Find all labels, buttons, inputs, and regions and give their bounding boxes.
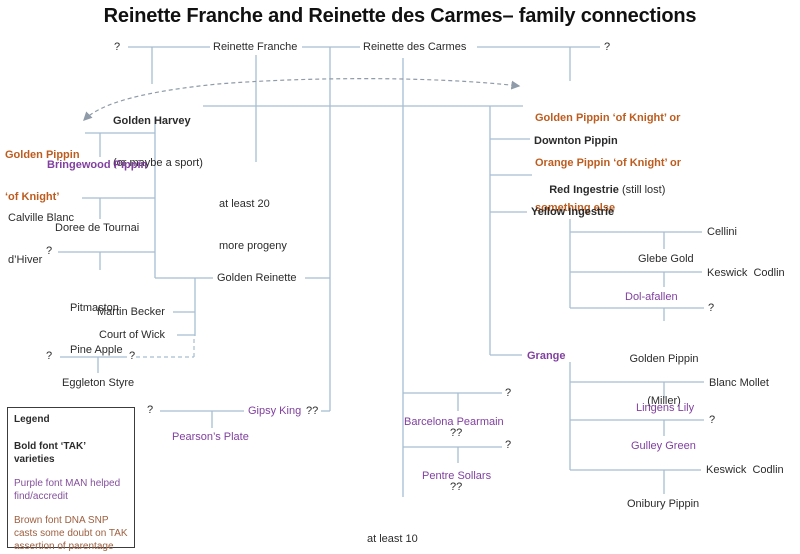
node-keswick-codlin-lower: Keswick Codlin [706,463,784,477]
node-glebe-gold: Glebe Gold [638,252,694,266]
node-blanc-mollet: Blanc Mollet [709,376,769,390]
barcelona-doubt-marks: ?? [450,426,462,440]
red-ingestrie-note: (still lost) [619,184,665,196]
unknown-parent-eggleton-1: ? [46,349,52,363]
node-reinette-franche: Reinette Franche [213,40,297,54]
unknown-parent-top-left: ? [114,40,120,54]
node-yellow-ingestrie: Yellow Ingestrie [531,205,614,219]
node-golden-harvey: Golden Harvey (or maybe a sport) [113,86,203,198]
node-doree-de-tournai: Doree de Tournai [55,221,139,235]
unknown-parent-gipsy: ? [147,403,153,417]
unknown-parent-gulley: ? [709,413,715,427]
node-bringewood-pippin: Bringewood Pippin [47,158,147,172]
node-downton-pippin: Downton Pippin [534,134,618,148]
node-gulley-green: Gulley Green [631,439,696,453]
slide-canvas: Reinette Franche and Reinette des Carmes… [0,0,800,554]
unknown-parent-top-right: ? [604,40,610,54]
node-grange: Grange [527,349,566,363]
node-pearsons-plate: Pearson’s Plate [172,430,249,444]
node-lingens-lily: Lingens Lily [636,401,694,415]
note-at-least-10-progeny: at least 10 more progeny [367,504,435,554]
node-golden-reinette: Golden Reinette [217,271,297,285]
node-calville-blanc-dhiver: Calville Blanc d’Hiver [8,183,74,295]
unknown-parent-pentre: ? [505,438,511,452]
legend-tak-entry: Bold font ‘TAK’ varieties [14,440,128,466]
node-eggleton-styre: Eggleton Styre [62,376,134,390]
unknown-parent-pitmaston: ? [46,244,52,258]
node-cellini: Cellini [707,225,737,239]
note-at-least-20-progeny: at least 20 more progeny [219,169,287,281]
unknown-parent-barcelona: ? [505,386,511,400]
unknown-parent-eggleton-2: ? [129,349,135,363]
node-golden-pippin-miller: Golden Pippin (Miller) [622,324,706,436]
unknown-parent-miller: ? [708,301,714,315]
node-alternative-knight-pippin: Golden Pippin ‘of Knight’ or Orange Pipp… [535,81,681,246]
node-gipsy-king: Gipsy King [248,404,301,418]
node-court-of-wick: Court of Wick [99,328,165,342]
gipsy-king-doubt-marks: ?? [306,404,318,418]
node-reinette-des-carmes: Reinette des Carmes [363,40,466,54]
legend-man-entry: Purple font MAN helped find/accredit [14,477,128,503]
node-onibury-pippin: Onibury Pippin [627,497,699,511]
legend-heading: Legend [14,413,128,426]
legend: Legend Bold font ‘TAK’ varieties Purple … [7,407,135,548]
node-dol-afallen: Dol-afallen [625,290,678,304]
page-title: Reinette Franche and Reinette des Carmes… [0,5,800,28]
pentre-doubt-marks: ?? [450,480,462,494]
node-keswick-codlin-upper: Keswick Codlin [707,266,785,280]
legend-dna-entry: Brown font DNA SNP casts some doubt on T… [14,514,128,553]
node-martin-becker: Martin Becker [97,305,165,319]
